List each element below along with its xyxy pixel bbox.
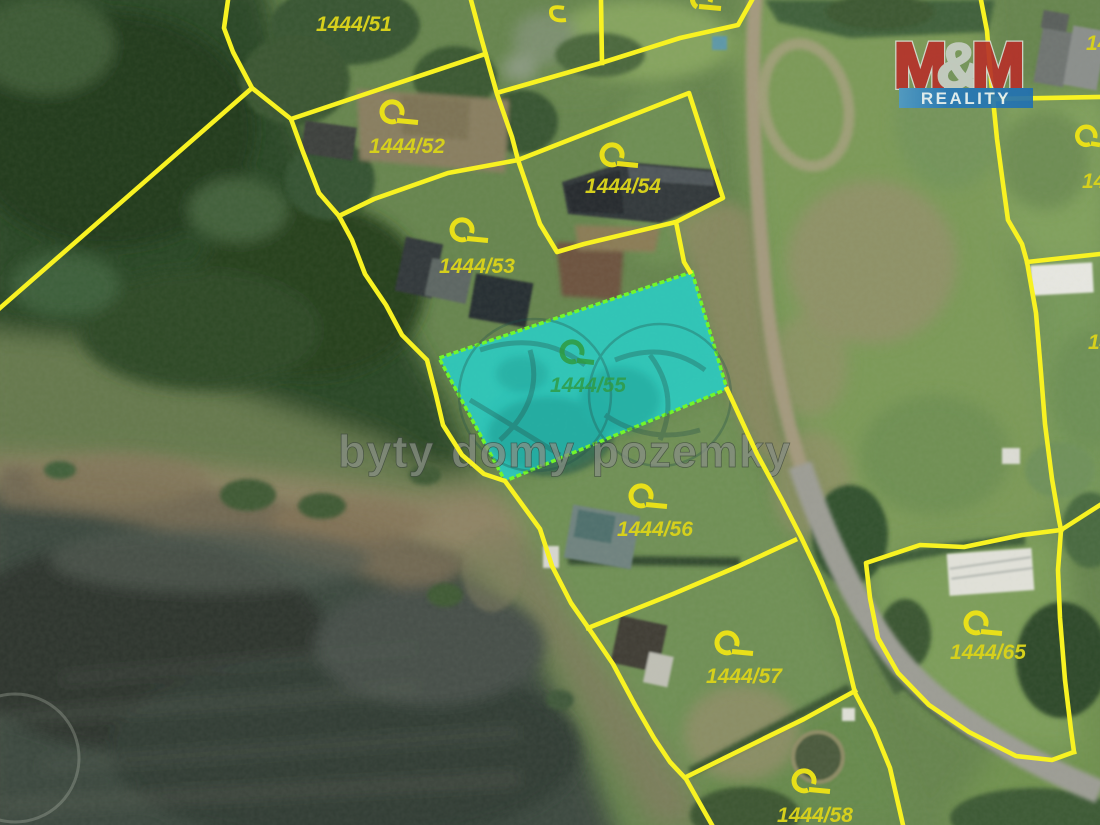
svg-text:14: 14	[1086, 32, 1100, 55]
svg-text:1444/56: 1444/56	[617, 518, 693, 541]
svg-text:1444/58: 1444/58	[777, 804, 853, 825]
svg-text:14: 14	[1088, 331, 1100, 354]
svg-text:1444/52: 1444/52	[369, 135, 445, 158]
svg-text:1444/54: 1444/54	[585, 175, 661, 198]
svg-text:byty domy pozemky: byty domy pozemky	[338, 426, 791, 477]
svg-text:1444/51: 1444/51	[316, 13, 392, 36]
svg-text:1444/53: 1444/53	[439, 255, 515, 278]
svg-text:1444/65: 1444/65	[950, 641, 1026, 664]
svg-text:1444/55: 1444/55	[550, 374, 626, 397]
svg-text:1444/57: 1444/57	[706, 665, 783, 688]
svg-text:REALITY: REALITY	[921, 89, 1011, 108]
svg-text:14: 14	[1082, 170, 1100, 193]
